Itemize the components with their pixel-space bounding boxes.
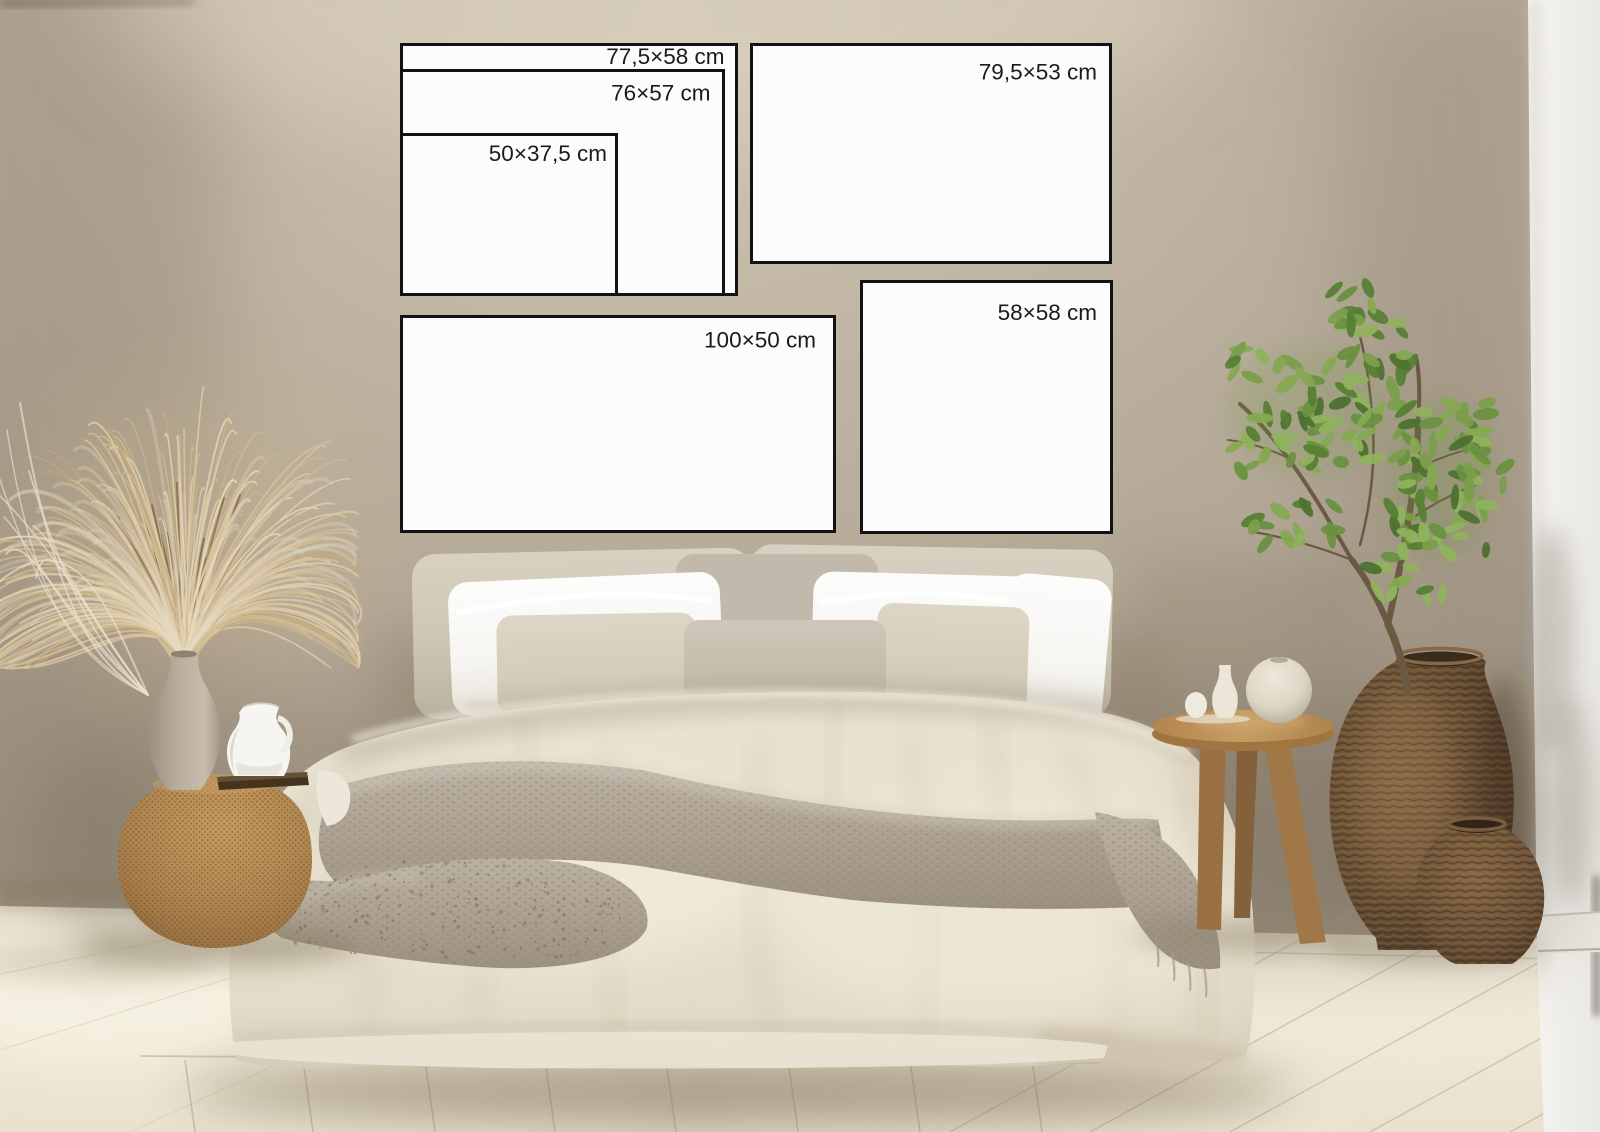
- svg-text:79,5×53 cm: 79,5×53 cm: [979, 60, 1097, 85]
- svg-text:50×37,5 cm: 50×37,5 cm: [489, 141, 607, 166]
- svg-text:100×50 cm: 100×50 cm: [704, 328, 816, 353]
- svg-text:76×57 cm: 76×57 cm: [611, 81, 710, 106]
- svg-text:77,5×58 cm: 77,5×58 cm: [606, 44, 724, 69]
- svg-text:58×58 cm: 58×58 cm: [998, 300, 1097, 325]
